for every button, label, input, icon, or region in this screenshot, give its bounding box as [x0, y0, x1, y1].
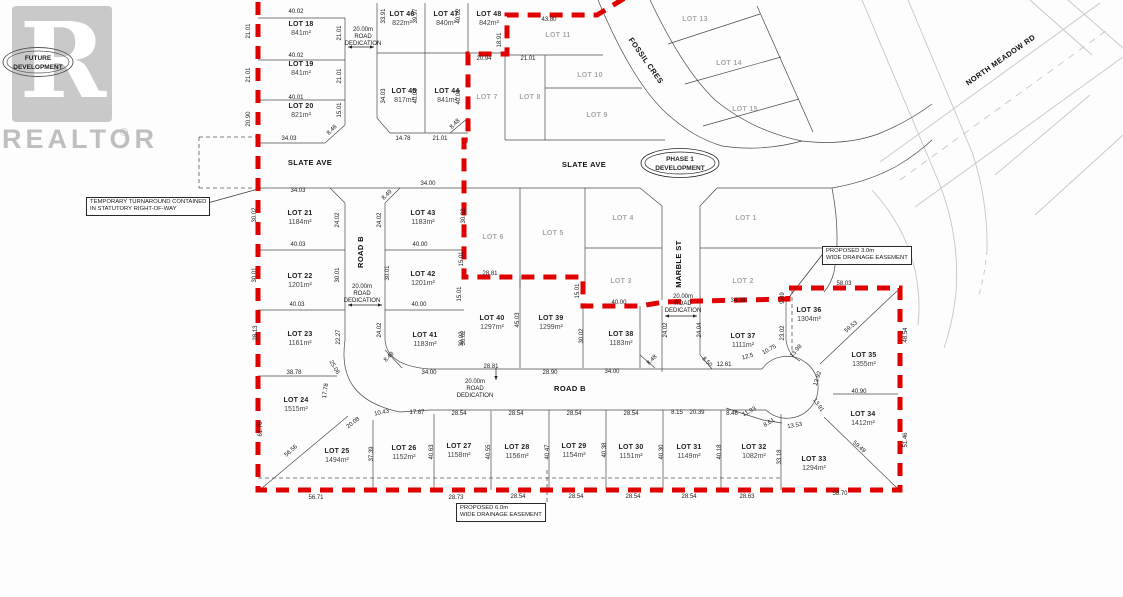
dimension-label: 28.54: [623, 411, 639, 417]
easement6-note-line2: WIDE DRAINAGE EASEMENT: [460, 512, 542, 519]
future-lot-label: LOT 4: [612, 215, 633, 222]
lot-area-label: 1158m²: [447, 452, 471, 459]
lot-area-label: 1161m²: [288, 340, 312, 347]
lot-number-label: LOT 23: [288, 331, 313, 338]
stamp-line1: FUTURE: [25, 55, 52, 62]
drainage-easement-3m-note: PROPOSED 3.0m WIDE DRAINAGE EASEMENT: [822, 246, 912, 265]
turnaround-note: TEMPORARY TURNAROUND CONTAINED IN STATUT…: [86, 197, 210, 216]
drainage-easement-6m-note: PROPOSED 6.0m WIDE DRAINAGE EASEMENT: [456, 503, 546, 522]
dimension-label: 20.39: [689, 410, 705, 416]
lot-number-label: LOT 22: [288, 273, 313, 280]
lot-number-label: LOT 28: [505, 444, 530, 451]
lot-area-label: 841m²: [437, 97, 458, 104]
dimension-label: 28.63: [739, 494, 755, 500]
street-name-label: MARBLE ST: [674, 240, 683, 287]
dimension-label: 8.48: [646, 354, 659, 367]
dimension-label: ROAD: [674, 301, 692, 307]
street-name-label: ROAD B: [554, 384, 586, 393]
lot-number-label: LOT 24: [284, 397, 309, 404]
dimension-label: 39.97: [413, 8, 419, 24]
dimension-label: 34.99: [730, 298, 746, 304]
dimension-label: 30.01: [385, 265, 391, 281]
dimension-label: 40.02: [288, 53, 304, 59]
dimension-label: 28.81: [482, 271, 498, 277]
dimension-label: 28.73: [448, 495, 464, 501]
lot-area-label: 1201m²: [411, 280, 435, 287]
street-name-label: ROAD B: [356, 236, 365, 268]
dimension-label: 12.61: [716, 362, 732, 368]
lot-area-label: 1297m²: [480, 324, 504, 331]
lot-area-label: 1304m²: [797, 316, 821, 323]
lot-area-label: 1183m²: [413, 341, 437, 348]
lot-area-label: 1299m²: [539, 324, 563, 331]
dimension-label: 33.91: [381, 8, 387, 24]
dimension-label: 40.30: [659, 444, 665, 460]
easement6-note-line1: PROPOSED 6.0m: [460, 505, 542, 512]
lot-area-label: 1494m²: [325, 457, 349, 464]
dimension-label: 21.01: [337, 25, 343, 41]
dimension-label: 8.61: [763, 417, 777, 429]
dimension-label: 13.53: [787, 422, 803, 431]
dimension-label: 30.02: [461, 208, 467, 224]
dimension-label: 56.71: [308, 495, 324, 501]
future-lot-label: LOT 14: [716, 60, 742, 67]
future-lot-label: LOT 15: [732, 106, 758, 113]
dimension-label: 21.01: [432, 136, 448, 142]
dimension-label: 20.90: [246, 111, 252, 127]
dimension-label: 28.90: [542, 370, 558, 376]
lot-number-label: LOT 26: [392, 445, 417, 452]
plat-svg: R REALTOR ® FUTURE DEVELOPMENT: [0, 0, 1123, 597]
lot-area-label: 1149m²: [677, 453, 701, 460]
dimension-label: 23.02: [780, 325, 786, 341]
dimension-label: 34.03: [381, 88, 387, 104]
dimension-label: 9.89: [780, 292, 786, 304]
dimension-label: 8.46: [726, 411, 738, 417]
dimension-label: 22.27: [336, 329, 342, 345]
dimension-label: 28.54: [625, 494, 641, 500]
dimension-label: 15.01: [457, 286, 463, 302]
lot-number-label: LOT 46: [390, 11, 415, 18]
dimension-label: 21.01: [337, 68, 343, 84]
future-lot-label: LOT 3: [610, 278, 631, 285]
lot-number-label: LOT 43: [411, 210, 436, 217]
lot-number-label: LOT 40: [480, 315, 505, 322]
dimension-label: 59.53: [844, 320, 860, 335]
dimension-label: 20.00m: [673, 294, 693, 300]
future-lot-label: LOT 9: [586, 112, 607, 119]
lot-number-label: LOT 21: [288, 210, 313, 217]
dimension-label: 28.54: [508, 411, 524, 417]
dimension-label: 61.76: [258, 421, 264, 437]
dimension-label: 40.03: [289, 302, 305, 308]
lot-number-label: LOT 25: [325, 448, 350, 455]
dimension-label: 34.03: [281, 136, 297, 142]
dimension-label: 13.98: [789, 343, 804, 359]
dimension-label: 13.91: [811, 398, 825, 414]
dimension-label: 8.46: [326, 124, 339, 137]
dimension-label: 12.5: [741, 352, 754, 361]
lot-number-label: LOT 34: [851, 411, 876, 418]
future-lot-label: LOT 8: [519, 94, 540, 101]
dimension-label: 28.54: [451, 411, 467, 417]
dimension-label: 8.49: [381, 189, 394, 202]
dimension-label: 20.00m: [465, 379, 485, 385]
lot-number-label: LOT 32: [742, 444, 767, 451]
future-lot-label: LOT 10: [577, 72, 603, 79]
dimension-label: 34.00: [421, 370, 437, 376]
dimension-label: 21.01: [246, 23, 252, 39]
dimension-label: DEDICATION: [665, 308, 702, 314]
lot-area-label: 1151m²: [619, 453, 643, 460]
dimension-label: 20.00m: [352, 284, 372, 290]
dimension-label: DEDICATION: [344, 298, 381, 304]
lot-area-label: 1154m²: [562, 452, 586, 459]
dimension-label: 8.15: [671, 410, 683, 416]
future-lot-label: LOT 6: [482, 234, 503, 241]
lot-area-label: 1201m²: [288, 282, 312, 289]
dimension-label: 28.13: [253, 325, 259, 341]
dimension-label: 30.01: [252, 267, 258, 283]
lot-area-label: 840m²: [436, 20, 457, 27]
dimension-label: 10.75: [761, 344, 778, 357]
dimension-label: 21.01: [246, 67, 252, 83]
lot-area-label: 1515m²: [284, 406, 308, 413]
dimension-label: 38.78: [286, 370, 302, 376]
lot-number-label: LOT 38: [609, 331, 634, 338]
dimension-label: 15.01: [337, 102, 343, 118]
phase1-development-badge: PHASE 1 DEVELOPMENT: [641, 149, 719, 178]
lot-area-label: 1183m²: [411, 219, 435, 226]
lot-area-label: 841m²: [291, 70, 312, 77]
lot-area-label: 1183m²: [609, 340, 633, 347]
lot-number-label: LOT 39: [539, 315, 564, 322]
dimension-label: 18.91: [497, 32, 503, 48]
dimension-label: ROAD: [353, 291, 371, 297]
lot-area-label: 1156m²: [505, 453, 529, 460]
dimension-label: 40.02: [456, 8, 462, 24]
realtor-wordmark: REALTOR: [2, 124, 158, 154]
lot-area-label: 1184m²: [288, 219, 312, 226]
lot-area-label: 841m²: [291, 30, 312, 37]
lot-number-label: LOT 33: [802, 456, 827, 463]
street-name-label: SLATE AVE: [562, 160, 606, 169]
lot-number-label: LOT 29: [562, 443, 587, 450]
lot-area-label: 1294m²: [802, 465, 826, 472]
dimension-label: 20.00m: [353, 27, 373, 33]
dimension-label: 8.50: [700, 356, 713, 369]
dimension-label: 34.00: [420, 181, 436, 187]
lot-number-label: LOT 20: [289, 103, 314, 110]
dimension-label: 28.81: [483, 364, 499, 370]
dimension-label: 40.00: [411, 302, 427, 308]
map-labels-layer: SLATE AVESLATE AVEROAD BROAD BMARBLE STF…: [246, 8, 1037, 501]
dimension-label: 56.56: [284, 444, 300, 459]
dimension-label: 40.90: [851, 389, 867, 395]
dimension-label: 24.02: [335, 212, 341, 228]
lot-area-label: 1152m²: [392, 454, 416, 461]
dimension-label: 20.08: [346, 416, 362, 430]
dimension-label: 58.70: [832, 491, 848, 497]
dimension-label: 40.00: [412, 242, 428, 248]
dimension-label: 40.38: [602, 442, 608, 458]
lot-area-label: 842m²: [479, 20, 500, 27]
dimension-label: 30.02: [579, 328, 585, 344]
lot-number-label: LOT 19: [289, 61, 314, 68]
dimension-label: 30.02: [252, 207, 258, 223]
dimension-label: 45.03: [515, 312, 521, 328]
dimension-label: 40.00: [611, 300, 627, 306]
lot-number-label: LOT 27: [447, 443, 472, 450]
dimension-label: 34.00: [604, 369, 620, 375]
dimension-label: 40.55: [486, 444, 492, 460]
lot-area-label: 1355m²: [852, 361, 876, 368]
dimension-label: 28.54: [681, 494, 697, 500]
street-name-label: NORTH MEADOW RD: [964, 32, 1037, 87]
phase-badge-line1: PHASE 1: [666, 156, 694, 163]
dimension-label: 24.02: [377, 322, 383, 338]
lot-number-label: LOT 47: [434, 11, 459, 18]
lot-number-label: LOT 41: [413, 332, 438, 339]
dimension-label: DEDICATION: [457, 393, 494, 399]
dimension-label: 17.78: [322, 382, 330, 398]
dimension-label: 43.80: [541, 17, 557, 23]
lot-number-label: LOT 48: [477, 11, 502, 18]
easement3-note-line2: WIDE DRAINAGE EASEMENT: [826, 255, 908, 262]
lot-number-label: LOT 18: [289, 21, 314, 28]
dimension-label: 33.18: [777, 449, 783, 465]
dimension-label: ROAD: [466, 386, 484, 392]
dimension-label: DEDICATION: [345, 41, 382, 47]
dimension-label: 40.18: [717, 444, 723, 460]
dimension-label: 24.02: [663, 322, 669, 338]
lot-area-label: 821m²: [291, 112, 312, 119]
lot-area-label: 1082m²: [742, 453, 766, 460]
dimension-label: 59.49: [851, 440, 867, 455]
dimension-label: 25.06: [328, 359, 341, 376]
registered-mark-icon: ®: [120, 127, 128, 139]
lot-number-label: LOT 36: [797, 307, 822, 314]
dimension-label: 17.67: [409, 410, 425, 416]
lot-area-label: 817m²: [394, 97, 415, 104]
dimension-label: 8.49: [383, 351, 396, 364]
dimension-label: ROAD: [354, 34, 372, 40]
dimension-label: 40.03: [413, 88, 419, 104]
future-lot-label: LOT 11: [545, 32, 570, 39]
turnaround-note-line1: TEMPORARY TURNAROUND CONTAINED: [90, 199, 206, 206]
dimension-label: 40.47: [545, 444, 551, 460]
lot-area-label: 822m²: [392, 20, 413, 27]
dimension-label: 11.93: [742, 406, 758, 418]
future-lot-label: LOT 7: [476, 94, 497, 101]
street-name-label: SLATE AVE: [288, 158, 332, 167]
lot-number-label: LOT 42: [411, 271, 436, 278]
dimension-label: 51.46: [903, 432, 909, 448]
future-lot-label: LOT 2: [732, 278, 753, 285]
dimension-label: 15.01: [575, 283, 581, 299]
phase-badge-line2: DEVELOPMENT: [655, 165, 705, 172]
dimension-label: 40.01: [288, 95, 304, 101]
lot-number-label: LOT 37: [731, 333, 756, 340]
easement3-note-line1: PROPOSED 3.0m: [826, 248, 908, 255]
lot-number-label: LOT 31: [677, 444, 702, 451]
dimension-label: 28.54: [510, 494, 526, 500]
dimension-label: 30.01: [335, 267, 341, 283]
future-lot-label: LOT 5: [542, 230, 563, 237]
dimension-label: 14.78: [395, 136, 411, 142]
dimension-label: 40.03: [456, 89, 462, 105]
lot-area-label: 1412m²: [851, 420, 875, 427]
dimension-label: 24.04: [697, 322, 703, 338]
lot-area-label: 1111m²: [732, 342, 755, 349]
dimension-label: 28.54: [566, 411, 582, 417]
lot-number-label: LOT 30: [619, 444, 644, 451]
future-lot-label: LOT 13: [682, 16, 708, 23]
dimension-label: 24.02: [377, 212, 383, 228]
lot-number-label: LOT 35: [852, 352, 877, 359]
street-name-label: FOSSIL CRES: [627, 36, 666, 86]
dimension-label: 58.03: [836, 281, 852, 287]
dimension-label: 48.54: [903, 327, 909, 343]
dimension-label: 28.54: [568, 494, 584, 500]
dimension-label: 30.02: [459, 331, 465, 347]
dimension-label: 40.63: [429, 444, 435, 460]
dimension-label: 20.94: [476, 56, 492, 62]
future-lot-label: LOT 1: [735, 215, 756, 222]
dimension-label: 10.43: [374, 408, 391, 417]
dimension-label: 21.01: [520, 56, 536, 62]
turnaround-note-line2: IN STATUTORY RIGHT-OF-WAY: [90, 206, 206, 213]
dimension-label: 34.03: [290, 188, 306, 194]
dimension-label: 15.01: [459, 251, 465, 267]
dimension-label: 40.02: [288, 9, 304, 15]
dimension-label: 40.03: [290, 242, 306, 248]
dimension-label: 37.39: [369, 446, 375, 462]
stamp-line2: DEVELOPMENT: [13, 64, 63, 71]
subdivision-plat-map: R REALTOR ® FUTURE DEVELOPMENT: [0, 0, 1123, 597]
realtor-logo: R REALTOR ®: [2, 0, 158, 154]
